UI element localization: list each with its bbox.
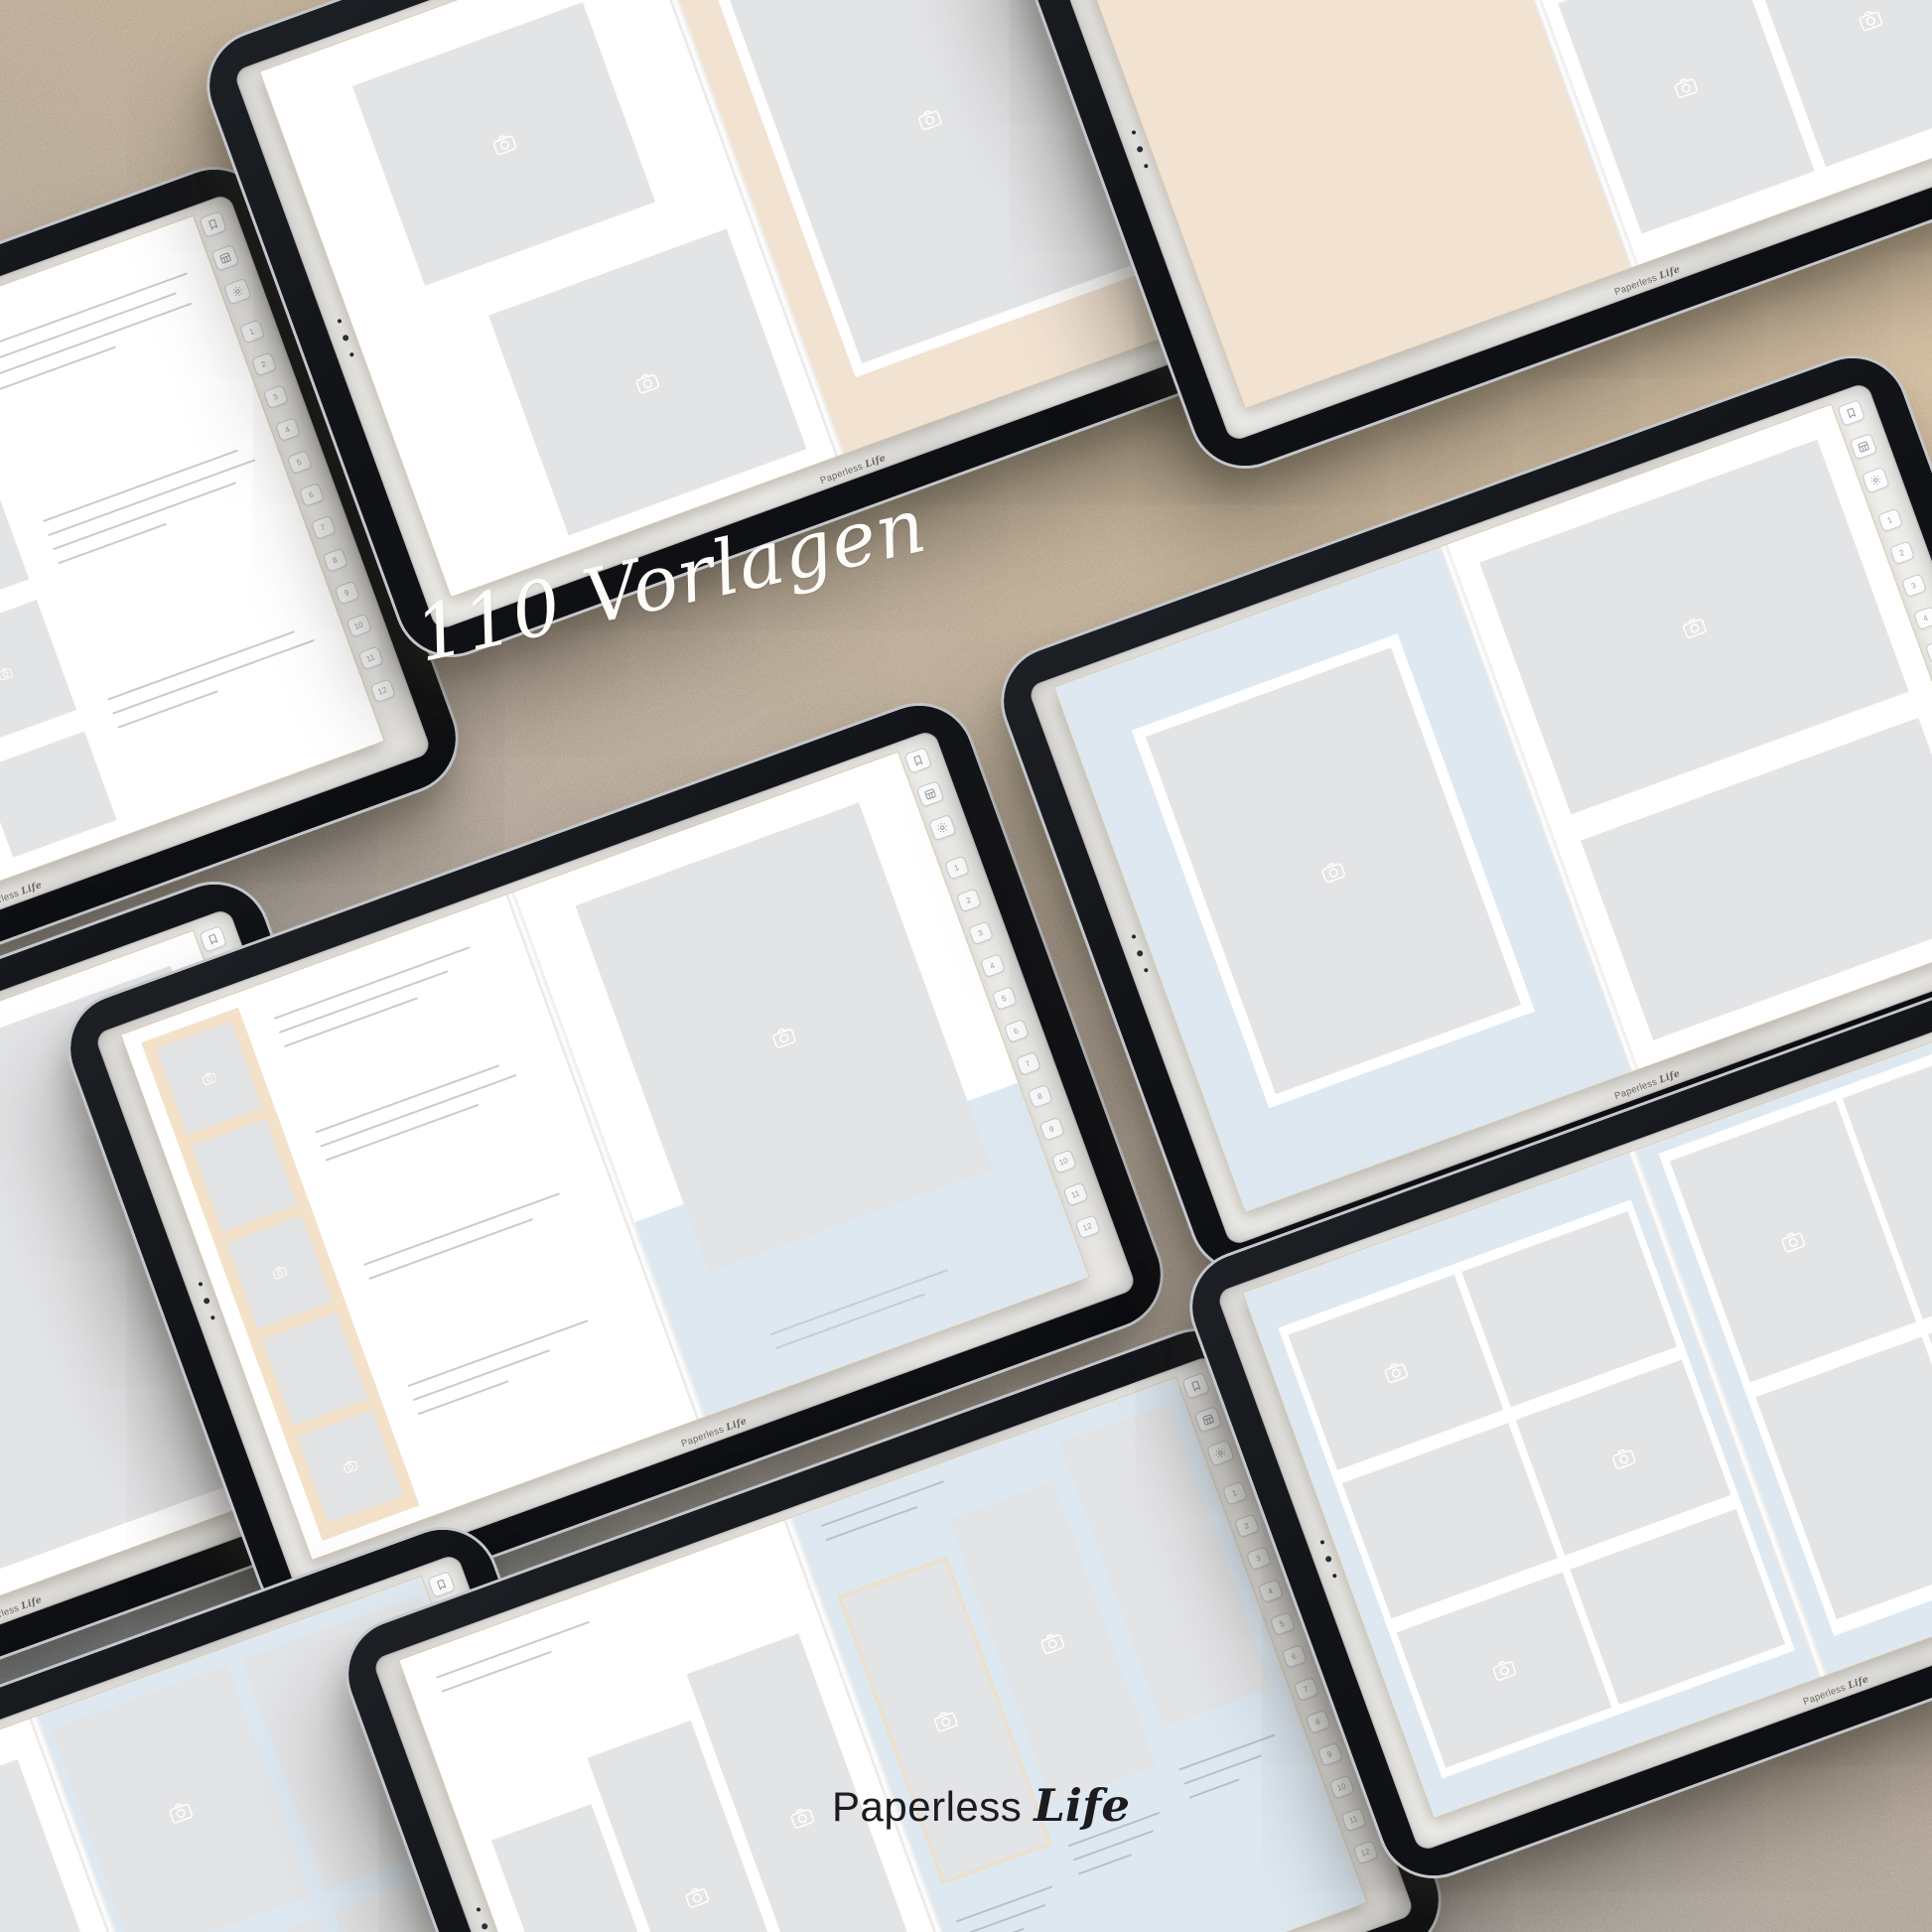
page-tab: 9 xyxy=(334,581,359,606)
text-lines xyxy=(0,272,203,391)
calendar-grid-icon xyxy=(216,250,233,267)
promo-image: 123456789101112 PaperlessLife xyxy=(0,0,1932,1932)
camera-icon xyxy=(341,1456,361,1477)
page-tab: 3 xyxy=(1900,573,1926,598)
camera-icon xyxy=(785,1800,818,1833)
text-lines xyxy=(315,1060,521,1162)
photo-placeholder xyxy=(227,1216,333,1328)
page-tab: 1 xyxy=(943,856,969,881)
text-lines xyxy=(1178,1733,1286,1798)
text-lines xyxy=(956,1886,1063,1932)
photo-placeholder xyxy=(0,731,117,858)
bookmark-icon xyxy=(1843,405,1860,422)
page-tab: 7 xyxy=(1015,1051,1040,1076)
camera-icon xyxy=(928,1704,961,1736)
photo-placeholder xyxy=(157,1022,262,1134)
page-tab: 12 xyxy=(1352,1840,1378,1864)
page-tab: 8 xyxy=(1027,1084,1052,1109)
front-camera xyxy=(1136,949,1144,957)
camera-icon xyxy=(1379,1355,1412,1388)
photo-placeholder xyxy=(1132,634,1535,1108)
bookmark-tab xyxy=(1837,399,1865,427)
camera-icon xyxy=(1316,855,1349,888)
bookmark-icon xyxy=(205,931,221,948)
front-camera xyxy=(1136,145,1144,153)
bookmark-icon xyxy=(433,1577,450,1593)
photo-placeholder xyxy=(192,1119,297,1231)
page-tab: 2 xyxy=(250,352,276,377)
photo-placeholder xyxy=(262,1312,367,1425)
camera-icon xyxy=(1487,1653,1520,1686)
page-tab: 10 xyxy=(1328,1775,1354,1800)
camera-icon xyxy=(1854,3,1886,36)
page-tab: 9 xyxy=(1038,1117,1064,1142)
camera-icon xyxy=(0,663,15,684)
calendar-tab xyxy=(1193,1406,1222,1434)
camera-icon xyxy=(1776,1225,1809,1258)
calendar-tab xyxy=(210,244,239,272)
camera-icon xyxy=(1678,611,1711,643)
calendar-grid-icon xyxy=(921,786,938,803)
page-tab: 9 xyxy=(1316,1742,1342,1767)
page-tab: 7 xyxy=(1293,1677,1318,1702)
bookmark-icon xyxy=(1187,1378,1204,1395)
page-tab: 3 xyxy=(967,920,993,945)
page-tab: 3 xyxy=(262,384,288,409)
page-tab: 4 xyxy=(1257,1579,1283,1603)
camera-icon xyxy=(767,1021,800,1053)
page-tab: 4 xyxy=(979,953,1005,978)
page-tab: 5 xyxy=(1924,638,1932,663)
page-tab: 4 xyxy=(1912,606,1932,630)
page-tab: 11 xyxy=(1340,1808,1366,1833)
page-tab: 1 xyxy=(1221,1481,1247,1506)
page-tab: 6 xyxy=(298,483,324,507)
settings-tab xyxy=(927,814,956,842)
camera-icon xyxy=(165,1796,198,1829)
page-tab: 2 xyxy=(1888,541,1914,566)
calendar-grid-icon xyxy=(1855,439,1871,456)
settings-icon xyxy=(228,283,245,300)
page-tab: 1 xyxy=(1876,508,1902,533)
page-tab: 3 xyxy=(1245,1546,1271,1571)
page-tab: 11 xyxy=(357,646,383,671)
bookmark-tab xyxy=(1181,1372,1210,1400)
camera-icon xyxy=(269,1262,290,1283)
text-lines xyxy=(43,445,266,564)
bookmark-tab xyxy=(427,1571,456,1598)
camera-icon xyxy=(199,1068,219,1089)
page-tab: 4 xyxy=(274,417,300,442)
page-tab: 2 xyxy=(1233,1514,1259,1539)
page-tab: 2 xyxy=(955,889,981,913)
text-lines xyxy=(363,1192,565,1280)
camera-icon xyxy=(912,102,945,135)
bookmark-tab xyxy=(199,210,227,238)
camera-icon xyxy=(487,127,520,160)
page-tab: 5 xyxy=(991,986,1017,1011)
settings-icon xyxy=(933,819,950,836)
camera-icon xyxy=(680,1880,713,1913)
camera-icon xyxy=(1035,1626,1068,1659)
settings-tab xyxy=(1861,467,1889,494)
photo-placeholder xyxy=(298,1410,403,1522)
settings-tab xyxy=(1205,1440,1234,1467)
page-tab: 10 xyxy=(1050,1150,1076,1174)
front-camera xyxy=(342,334,349,342)
photo-placeholder xyxy=(352,2,655,285)
bookmark-icon xyxy=(205,216,221,233)
front-camera xyxy=(481,1922,488,1930)
brand-logo: Paperless Life xyxy=(832,1779,1130,1832)
camera-icon xyxy=(1670,70,1703,103)
photo-placeholder xyxy=(488,229,806,536)
settings-tab xyxy=(222,278,251,306)
photo-placeholder xyxy=(0,469,29,617)
page-tab: 1 xyxy=(238,320,264,345)
front-camera xyxy=(203,1297,210,1305)
calendar-grid-icon xyxy=(1199,1412,1216,1429)
bookmark-tab xyxy=(199,925,227,953)
settings-icon xyxy=(1866,472,1883,488)
front-camera xyxy=(1324,1555,1332,1563)
camera-icon xyxy=(630,366,663,399)
page-tab: 11 xyxy=(1062,1182,1088,1207)
page-tab: 12 xyxy=(369,678,395,703)
page-tab: 7 xyxy=(310,515,336,540)
bookmark-tab xyxy=(903,747,932,774)
brand-name-italic: Life xyxy=(1034,1779,1130,1832)
settings-icon xyxy=(1211,1445,1228,1461)
page-tab: 6 xyxy=(1281,1644,1307,1669)
page-tab: 8 xyxy=(322,548,347,573)
page-tab: 10 xyxy=(345,614,371,638)
page-tab: 6 xyxy=(1003,1019,1029,1043)
camera-icon xyxy=(1606,1442,1639,1474)
page-tab: 5 xyxy=(286,450,312,475)
album-spread xyxy=(1054,0,1932,408)
calendar-tab xyxy=(915,780,944,808)
page-tab: 8 xyxy=(1305,1710,1330,1734)
photo-placeholder xyxy=(0,600,76,748)
bookmark-icon xyxy=(909,753,926,769)
brand-name-regular: Paperless xyxy=(832,1783,1022,1831)
text-lines xyxy=(407,1313,614,1415)
text-lines xyxy=(274,946,481,1047)
page-tab: 12 xyxy=(1074,1214,1100,1239)
text-lines xyxy=(436,1621,595,1693)
page-tab: 5 xyxy=(1269,1611,1295,1636)
calendar-tab xyxy=(1849,433,1877,461)
text-lines xyxy=(820,1480,949,1541)
text-lines xyxy=(107,623,326,729)
